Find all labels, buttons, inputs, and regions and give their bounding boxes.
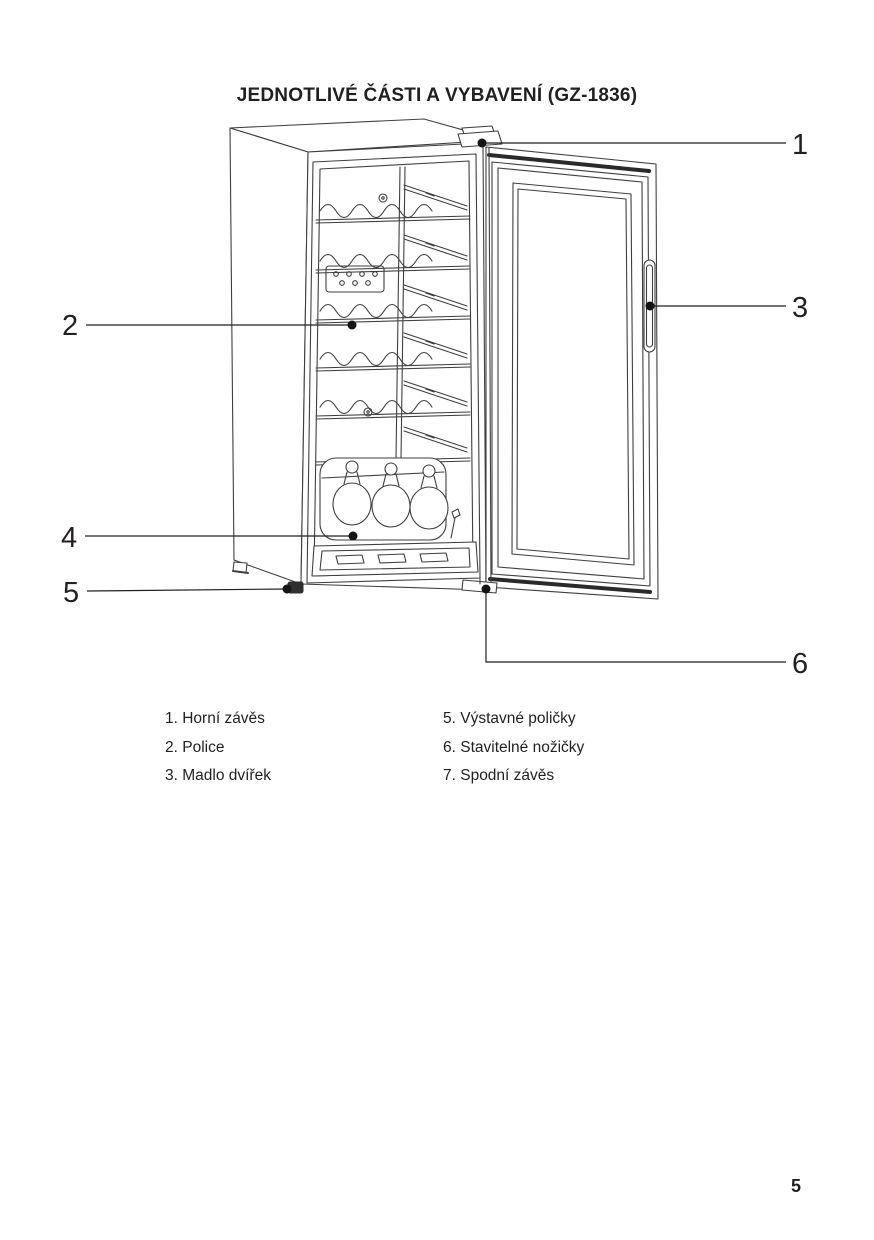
callout-number-5: 5 [63, 577, 79, 609]
anchor-dot-bottom-hinge [482, 585, 491, 594]
part-item-5: 5. Výstavné poličky [443, 705, 584, 734]
part-item-1: 1. Horní závěs [165, 705, 271, 734]
parts-list-right-column: 5. Výstavné poličky 6. Stavitelné nožičk… [443, 705, 584, 791]
anchor-dot-shelf [348, 321, 357, 330]
callout-number-2: 2 [62, 310, 78, 342]
page-number: 5 [791, 1176, 801, 1197]
part-item-7: 7. Spodní závěs [443, 762, 584, 791]
glass-door [486, 147, 658, 599]
callout-number-1: 1 [792, 129, 808, 161]
anchor-dot-top-hinge [478, 139, 487, 148]
callout-number-3: 3 [792, 292, 808, 324]
callout-number-6: 6 [792, 648, 808, 680]
appliance-diagram: 1 2 3 4 5 6 [0, 110, 874, 690]
callout-number-4: 4 [61, 522, 77, 554]
wine-cooler-line-art: 1 2 3 4 5 6 [0, 110, 874, 690]
anchor-dot-handle [646, 302, 655, 311]
page-title: JEDNOTLIVÉ ČÁSTI A VYBAVENÍ (GZ-1836) [0, 85, 874, 107]
part-item-2: 2. Police [165, 734, 271, 763]
parts-list-left-column: 1. Horní závěs 2. Police 3. Madlo dvířek [165, 705, 271, 791]
part-item-6: 6. Stavitelné nožičky [443, 734, 584, 763]
part-item-3: 3. Madlo dvířek [165, 762, 271, 791]
anchor-dot-foot [283, 585, 292, 594]
anchor-dot-display-shelf [349, 532, 358, 541]
